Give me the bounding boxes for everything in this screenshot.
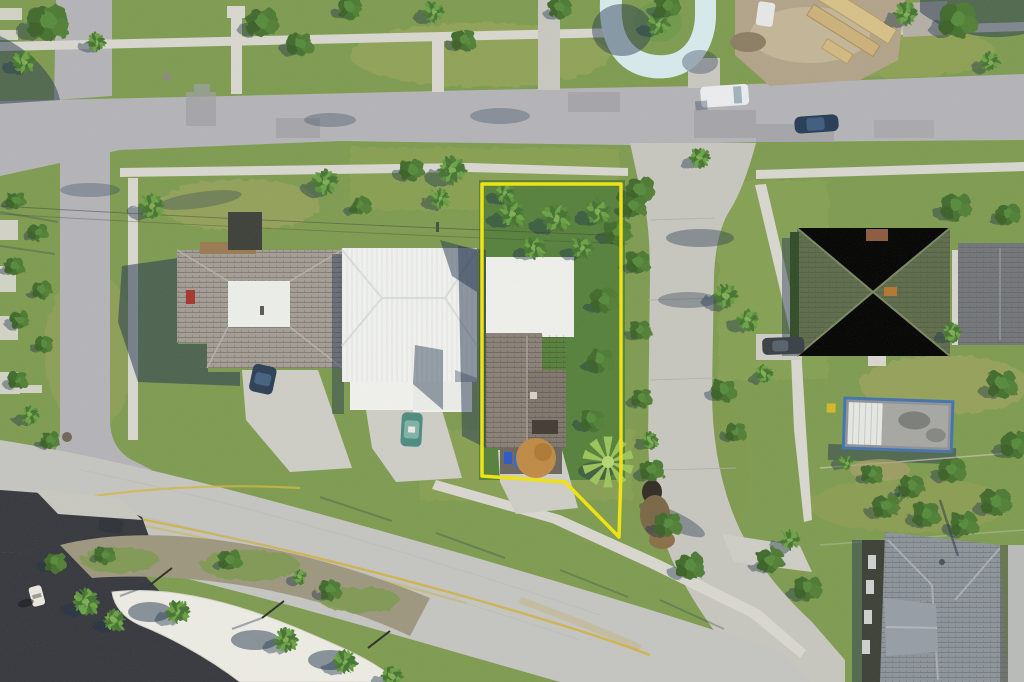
photo-grain — [0, 0, 1024, 682]
aerial-photo — [0, 0, 1024, 682]
aerial-photo-canvas — [0, 0, 1024, 682]
